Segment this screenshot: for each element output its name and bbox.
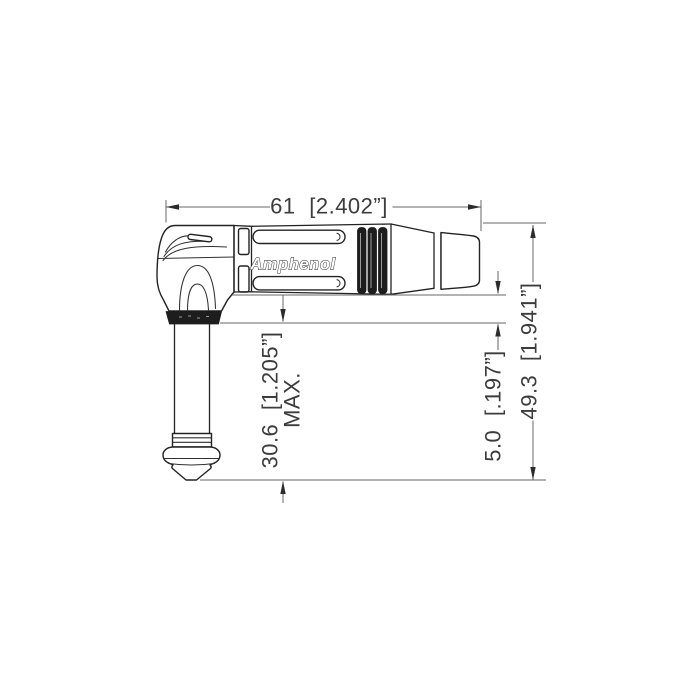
dim-label-boot-offset: 5.0 [.197”] (481, 350, 506, 462)
grip-ring-3 (379, 228, 388, 294)
grip-rings (358, 228, 388, 294)
dim-label-overall-height: 49.3 [1.941”] (517, 282, 542, 419)
brand-logo-text: Amphenol (249, 256, 335, 274)
grip-ring-1 (358, 228, 367, 294)
collar-window-lower (239, 266, 250, 292)
dim-label-shaft-max: MAX. (280, 372, 305, 428)
boot-end-cylinder (441, 233, 480, 290)
dim-label-overall-length: 61 [2.402”] (270, 194, 388, 219)
drawing-background (0, 0, 700, 700)
connector-dimension-drawing: Amphenol (0, 0, 700, 700)
collar-window-upper (239, 229, 250, 255)
knurled-nut-band (166, 312, 222, 325)
grip-groove-lower (253, 277, 345, 290)
grip-ring-2 (368, 228, 377, 294)
shaft-groove-band (173, 434, 212, 448)
grip-groove-upper (253, 230, 345, 243)
